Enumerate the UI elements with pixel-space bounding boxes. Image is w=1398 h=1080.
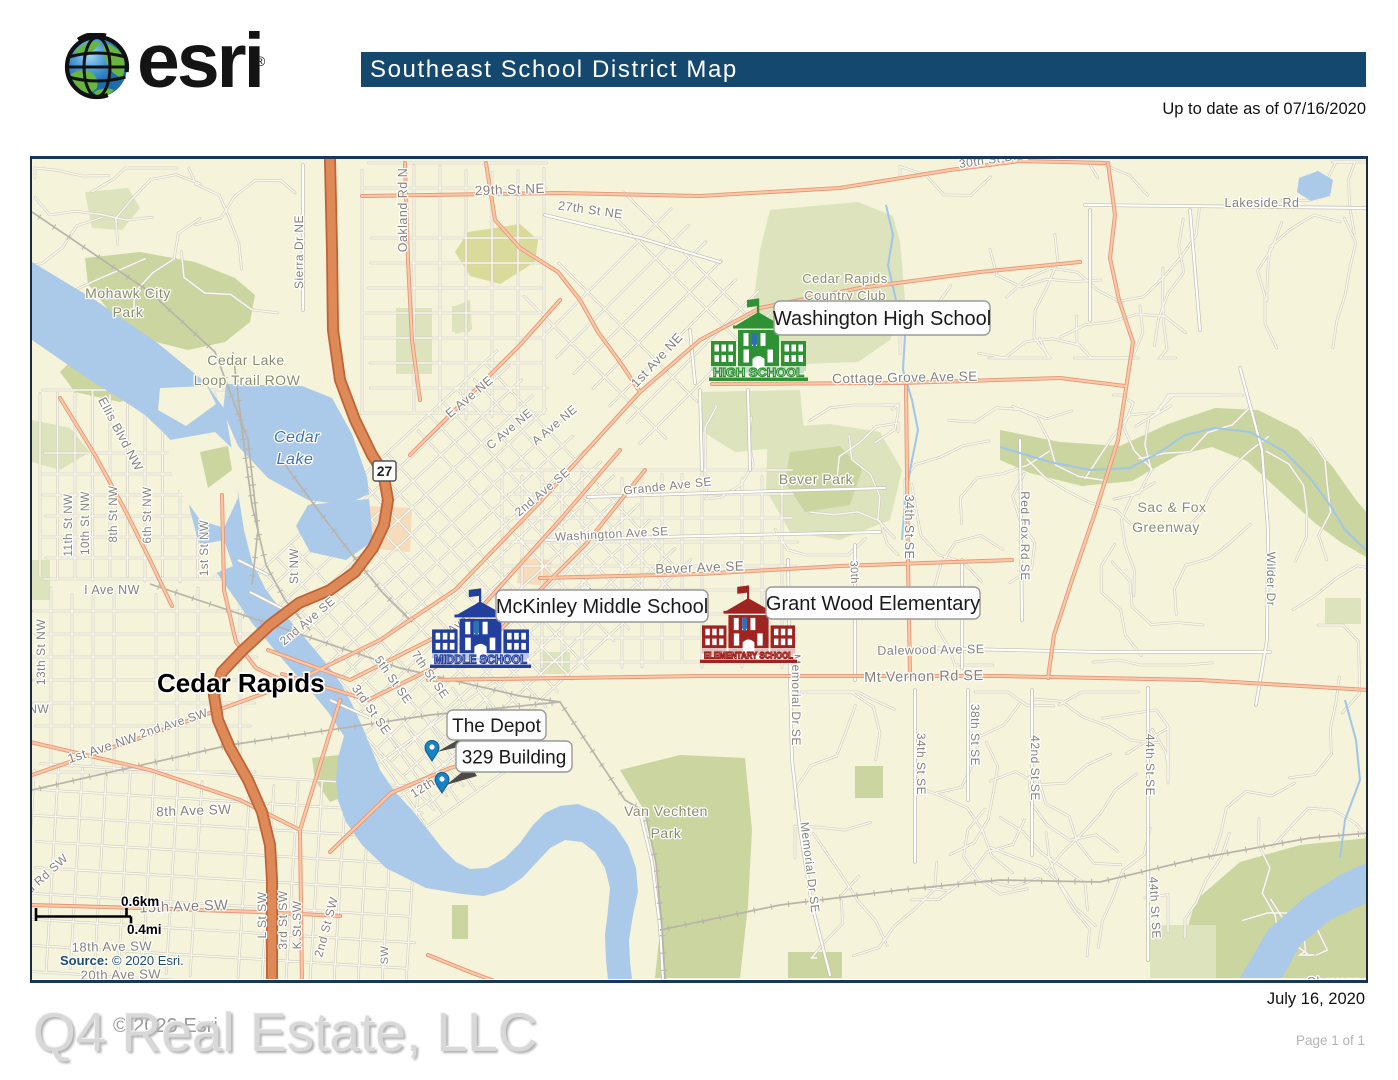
svg-text:3rd St SW: 3rd St SW	[276, 890, 290, 949]
svg-text:Source: © 2020 Esri.: Source: © 2020 Esri.	[60, 953, 184, 968]
svg-text:Cedar Lake: Cedar Lake	[207, 352, 284, 368]
svg-text:Lakeside Rd: Lakeside Rd	[1225, 196, 1300, 210]
svg-text:Washington High School: Washington High School	[773, 308, 991, 330]
svg-text:13th St NW: 13th St NW	[34, 619, 48, 686]
svg-text:29th St NE: 29th St NE	[474, 181, 545, 198]
svg-text:Bever Ave SE: Bever Ave SE	[655, 558, 745, 576]
svg-text:Cottage Grove Ave SE: Cottage Grove Ave SE	[832, 369, 978, 387]
svg-text:329 Building: 329 Building	[462, 747, 567, 768]
svg-text:Memorial Dr SE: Memorial Dr SE	[789, 654, 803, 746]
svg-text:Dalewood Ave SE: Dalewood Ave SE	[877, 642, 985, 658]
svg-text:HIGH SCHOOL: HIGH SCHOOL	[713, 366, 804, 380]
svg-text:Cedar Rapids: Cedar Rapids	[802, 271, 888, 286]
svg-text:0.6km: 0.6km	[121, 894, 159, 909]
svg-text:Cheyenne: Cheyenne	[1306, 974, 1366, 979]
svg-text:11th St NW: 11th St NW	[63, 494, 75, 557]
svg-text:L St SW: L St SW	[255, 891, 269, 938]
svg-text:I Ave NW: I Ave NW	[84, 583, 140, 597]
svg-text:8th Ave SW: 8th Ave SW	[156, 802, 232, 820]
svg-text:MIDDLE SCHOOL: MIDDLE SCHOOL	[434, 655, 527, 667]
svg-text:Park: Park	[113, 304, 144, 320]
svg-text:ELEMENTARY SCHOOL: ELEMENTARY SCHOOL	[704, 651, 793, 662]
svg-text:Lake: Lake	[277, 451, 314, 468]
svg-text:SW: SW	[379, 946, 391, 965]
svg-text:1st St NW: 1st St NW	[199, 520, 211, 576]
svg-text:6th St NW: 6th St NW	[142, 487, 154, 544]
svg-text:Van Vechten: Van Vechten	[624, 803, 708, 819]
svg-text:Loop Trail ROW: Loop Trail ROW	[194, 372, 301, 388]
svg-text:8th St NW: 8th St NW	[108, 486, 120, 543]
svg-text:St NW: St NW	[289, 548, 301, 584]
svg-text:Mohawk City: Mohawk City	[85, 285, 171, 301]
svg-text:Wilder Dr: Wilder Dr	[1264, 552, 1278, 607]
svg-text:Oakland Rd N: Oakland Rd N	[396, 168, 410, 253]
svg-text:K St SW: K St SW	[290, 900, 304, 949]
svg-text:10th St NW: 10th St NW	[80, 491, 92, 555]
svg-text:Mt Vernon Rd SE: Mt Vernon Rd SE	[864, 668, 984, 686]
svg-text:ve NW: ve NW	[32, 702, 49, 716]
svg-text:Park: Park	[651, 825, 682, 841]
svg-text:20th Ave SW: 20th Ave SW	[81, 966, 162, 979]
svg-text:McKinley Middle School: McKinley Middle School	[496, 596, 708, 618]
svg-text:Bever Park: Bever Park	[779, 471, 854, 487]
svg-text:0.4mi: 0.4mi	[127, 922, 162, 937]
svg-text:Sierra Dr NE: Sierra Dr NE	[292, 215, 306, 289]
svg-text:27: 27	[377, 463, 393, 479]
svg-text:44th St SE: 44th St SE	[1143, 734, 1157, 796]
svg-text:34th St SE: 34th St SE	[902, 495, 916, 560]
svg-text:Cedar: Cedar	[274, 429, 320, 446]
svg-text:34th St SE: 34th St SE	[914, 733, 928, 795]
svg-text:38th St SE: 38th St SE	[968, 704, 982, 766]
svg-text:Red Fox Rd SE: Red Fox Rd SE	[1018, 491, 1032, 581]
svg-text:Grant Wood Elementary: Grant Wood Elementary	[766, 593, 980, 615]
svg-text:Greenway: Greenway	[1132, 519, 1200, 535]
svg-text:42nd St SE: 42nd St SE	[1028, 735, 1042, 801]
svg-text:Cedar Rapids: Cedar Rapids	[157, 668, 325, 698]
svg-text:The Depot: The Depot	[452, 716, 541, 737]
svg-text:Sac & Fox: Sac & Fox	[1137, 499, 1206, 515]
